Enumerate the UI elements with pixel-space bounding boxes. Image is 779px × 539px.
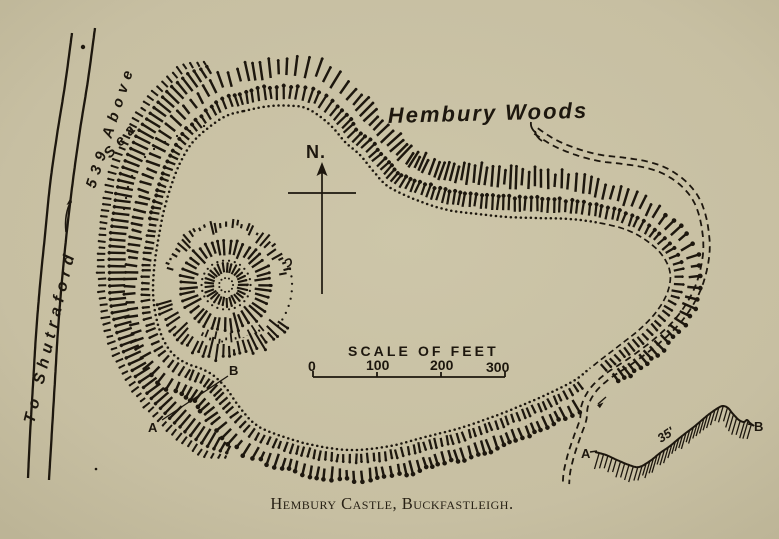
svg-text:A: A [581,446,591,461]
svg-text:200: 200 [430,357,454,373]
svg-text:N.: N. [306,142,326,162]
svg-text:300: 300 [486,359,510,375]
svg-text:Hembury Castle, Buckfastleigh.: Hembury Castle, Buckfastleigh. [270,494,513,513]
svg-text:A: A [148,420,158,435]
svg-text:B: B [229,363,238,378]
svg-text:100: 100 [366,357,390,373]
svg-text:B: B [754,419,763,434]
svg-text:Hembury Woods: Hembury Woods [387,98,588,128]
svg-text:0: 0 [308,358,316,374]
